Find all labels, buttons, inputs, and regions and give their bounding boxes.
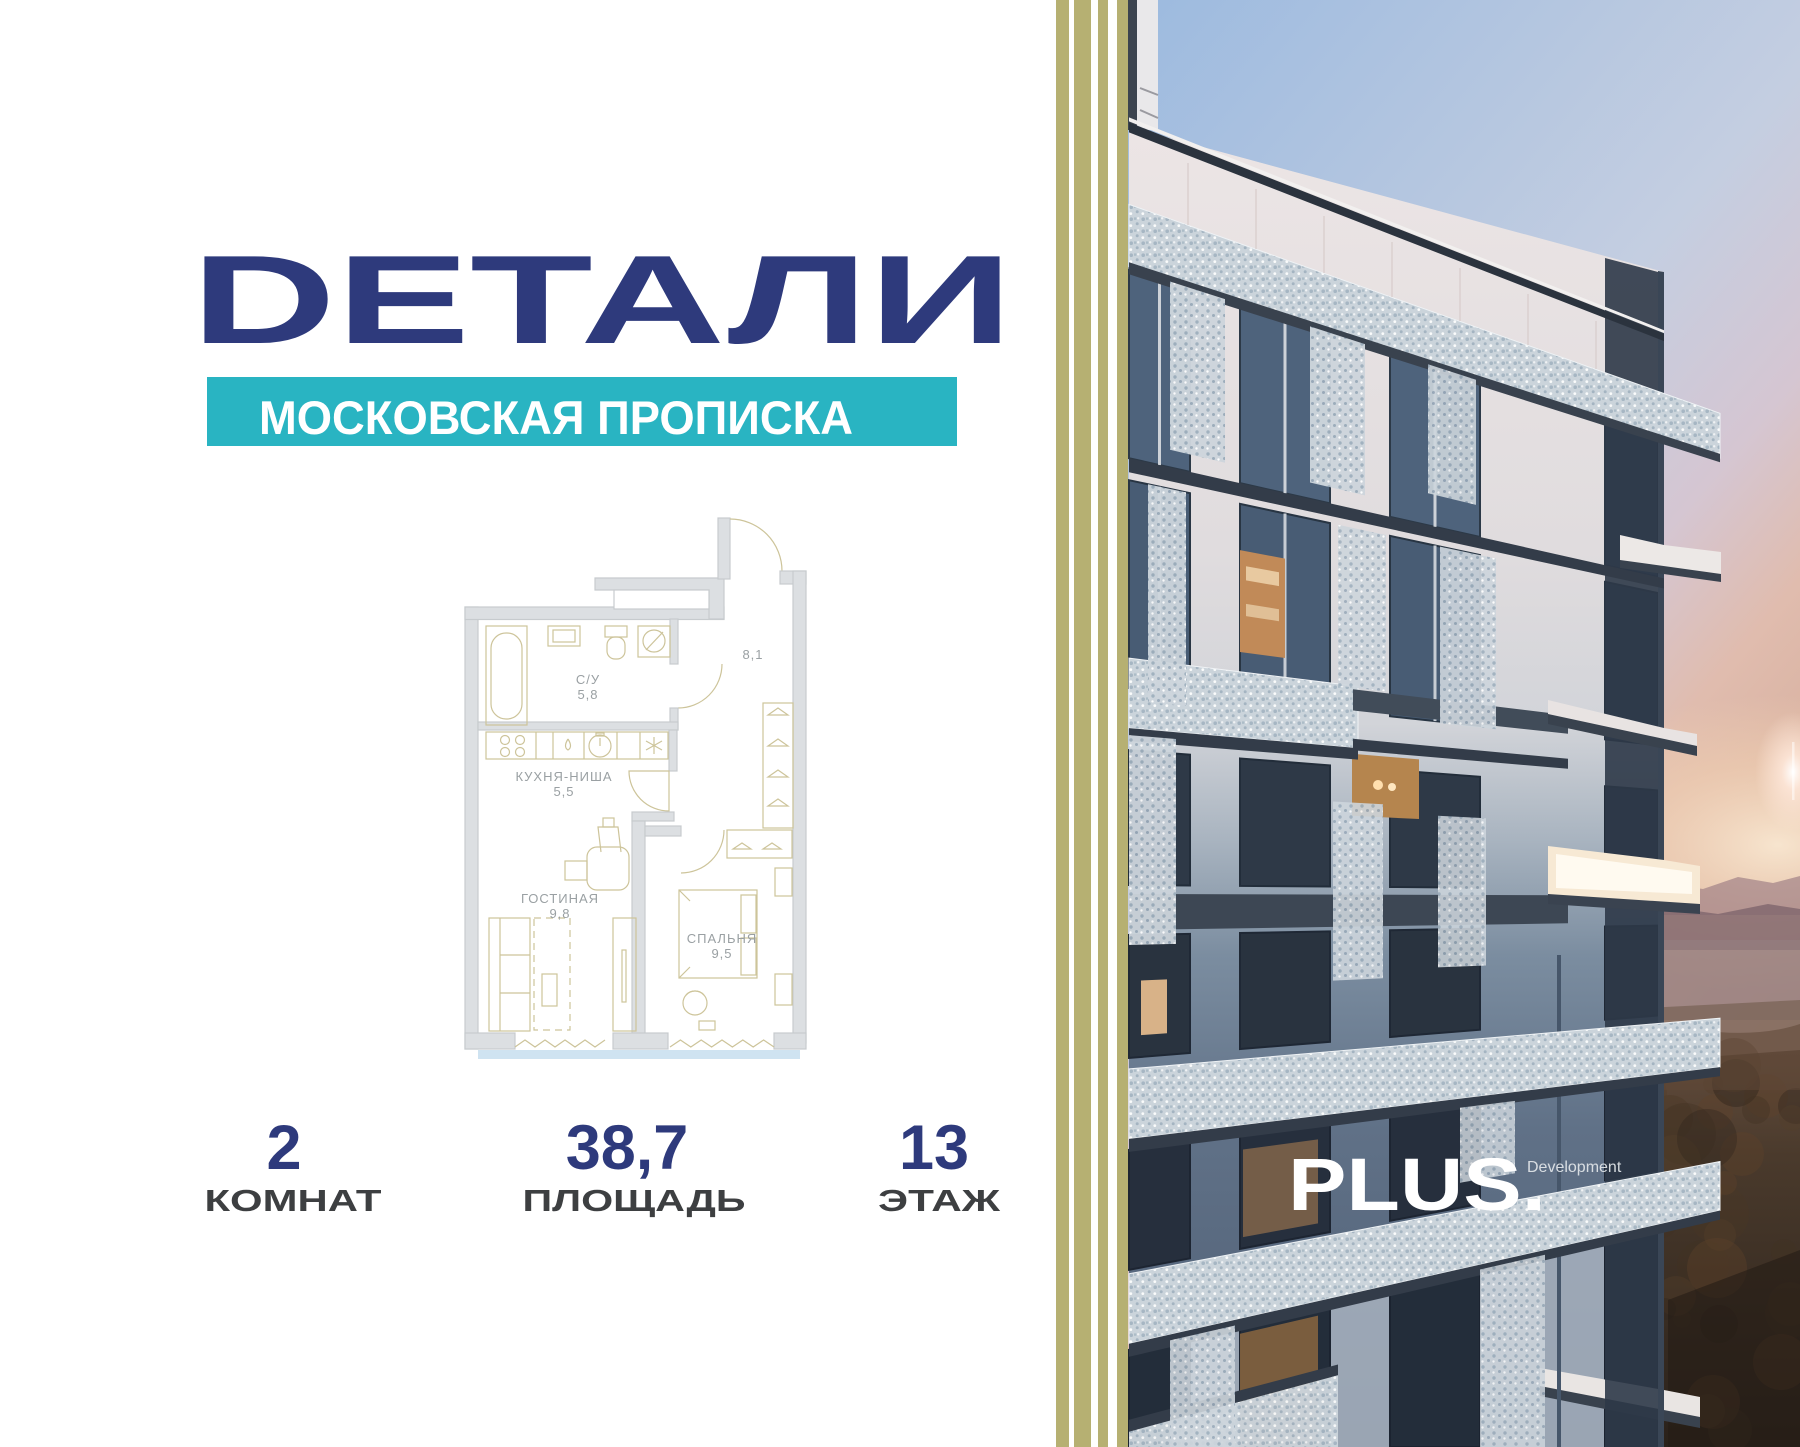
svg-text:13: 13 bbox=[899, 1113, 969, 1183]
svg-text:Development: Development bbox=[1527, 1159, 1622, 1176]
svg-text:С/У: С/У bbox=[576, 672, 600, 687]
svg-text:ГОСТИНАЯ: ГОСТИНАЯ bbox=[521, 891, 599, 906]
svg-text:9,5: 9,5 bbox=[711, 946, 732, 961]
svg-text:38,7: 38,7 bbox=[566, 1113, 689, 1183]
svg-text:СПАЛЬНЯ: СПАЛЬНЯ bbox=[687, 931, 758, 946]
svg-text:9,8: 9,8 bbox=[549, 906, 570, 921]
svg-text:DЕТАЛИ: DЕТАЛИ bbox=[191, 229, 1013, 370]
svg-text:КОМНАТ: КОМНАТ bbox=[205, 1183, 382, 1218]
svg-text:МОСКОВСКАЯ ПРОПИСКА: МОСКОВСКАЯ ПРОПИСКА bbox=[259, 391, 853, 444]
svg-text:PLUS.: PLUS. bbox=[1288, 1143, 1546, 1226]
svg-text:КУХНЯ-НИША: КУХНЯ-НИША bbox=[515, 769, 612, 784]
svg-text:5,5: 5,5 bbox=[553, 784, 574, 799]
svg-text:ЭТАЖ: ЭТАЖ bbox=[878, 1183, 1001, 1218]
svg-text:5,8: 5,8 bbox=[577, 687, 598, 702]
svg-text:8,1: 8,1 bbox=[742, 647, 763, 662]
svg-text:ПЛОЩАДЬ: ПЛОЩАДЬ bbox=[523, 1183, 746, 1218]
svg-text:2: 2 bbox=[266, 1113, 301, 1183]
